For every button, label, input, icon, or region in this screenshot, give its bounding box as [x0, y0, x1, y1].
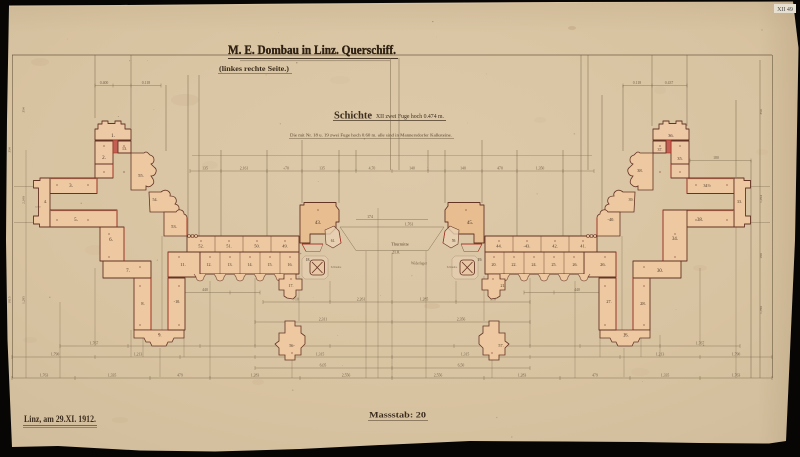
svg-text:-40.: -40.	[608, 217, 615, 222]
svg-text:13.: 13.	[228, 262, 233, 267]
svg-text:16.: 16.	[288, 262, 293, 267]
svg-text:25.: 25.	[552, 262, 557, 267]
svg-text:Linz, am 29.XI. 1912.: Linz, am 29.XI. 1912.	[24, 414, 96, 424]
svg-text:-10.: -10.	[174, 299, 181, 304]
svg-text:470: 470	[497, 167, 503, 171]
svg-text:180: 180	[759, 253, 763, 258]
svg-text:26.: 26.	[600, 262, 606, 267]
svg-text:50.: 50.	[254, 244, 260, 249]
svg-text:61.: 61.	[331, 239, 336, 243]
svg-text:0,160: 0,160	[35, 206, 41, 209]
svg-text:+70: +70	[283, 167, 289, 171]
svg-text:6.: 6.	[109, 238, 113, 243]
svg-text:15.: 15.	[268, 262, 273, 267]
svg-text:140: 140	[409, 167, 415, 171]
svg-text:38.: 38.	[697, 218, 703, 223]
svg-text:27.: 27.	[606, 299, 611, 304]
svg-text:21.: 21.	[501, 283, 506, 288]
svg-text:36.: 36.	[668, 133, 674, 138]
svg-text:59.: 59.	[452, 239, 457, 243]
svg-text:180: 180	[713, 156, 719, 160]
svg-text:56-: 56-	[289, 343, 295, 348]
svg-text:0.437: 0.437	[665, 81, 674, 85]
svg-text:30.: 30.	[657, 269, 663, 274]
svg-text:Schraube: Schraube	[331, 266, 342, 269]
svg-text:0.118: 0.118	[142, 81, 151, 85]
svg-text:49.: 49.	[282, 244, 288, 249]
svg-text:39.: 39.	[629, 197, 634, 202]
svg-text:37.: 37.	[658, 147, 663, 152]
svg-text:1.: 1.	[111, 134, 115, 139]
svg-text:34½: 34½	[703, 183, 710, 188]
svg-text:33.: 33.	[737, 199, 742, 204]
svg-text:140: 140	[460, 167, 466, 171]
svg-text:41.: 41.	[580, 244, 586, 249]
svg-text:354: 354	[8, 147, 12, 152]
svg-text:19.: 19.	[478, 258, 483, 262]
svg-text:55.: 55.	[138, 173, 144, 178]
svg-text:45.: 45.	[467, 221, 473, 226]
svg-text:28.: 28.	[640, 301, 646, 306]
svg-text:7.: 7.	[126, 269, 130, 274]
svg-text:354: 354	[759, 109, 763, 114]
svg-text:35.: 35.	[677, 156, 683, 161]
svg-text:3.: 3.	[69, 184, 73, 189]
svg-text:4.: 4.	[44, 199, 47, 204]
svg-text:38.: 38.	[637, 168, 643, 173]
svg-text:21.0.: 21.0.	[392, 250, 400, 255]
svg-text:14.: 14.	[248, 262, 253, 267]
svg-text:Thurmitte: Thurmitte	[391, 242, 409, 247]
svg-text:43.: 43.	[315, 221, 321, 226]
svg-text:17.: 17.	[289, 283, 294, 288]
svg-text:Schichte: Schichte	[334, 111, 373, 122]
svg-text:M. E. Dombau in Linz. Querschi: M. E. Dombau in Linz. Querschiff.	[228, 43, 396, 57]
svg-text:54.: 54.	[153, 197, 158, 202]
svg-text:135: 135	[202, 167, 208, 171]
svg-text:26.: 26.	[573, 262, 578, 267]
svg-text:0.118: 0.118	[633, 81, 642, 85]
svg-text:20.: 20.	[492, 262, 497, 267]
svg-text:42.: 42.	[552, 244, 558, 249]
svg-text:0.400: 0.400	[100, 81, 109, 85]
svg-text:440: 440	[202, 288, 208, 292]
svg-text:479: 479	[177, 374, 183, 378]
svg-text:XII 49: XII 49	[777, 7, 793, 13]
svg-text:Die mit Nr. 18 u. 19 zwei Fuge: Die mit Nr. 18 u. 19 zwei Fuge hoch 0.60…	[290, 133, 452, 138]
svg-text:354: 354	[22, 107, 26, 112]
svg-text:57.: 57.	[498, 343, 503, 348]
svg-text:11.: 11.	[180, 262, 186, 267]
svg-text:51.: 51.	[226, 244, 232, 249]
svg-text:(linkes rechte Seite.): (linkes rechte Seite.)	[219, 64, 290, 73]
svg-text:Schraube: Schraube	[447, 266, 458, 269]
svg-text:52.: 52.	[198, 244, 204, 249]
svg-text:53.: 53.	[171, 224, 177, 229]
svg-text:12.: 12.	[207, 262, 212, 267]
svg-text:135: 135	[319, 167, 325, 171]
svg-text:8.: 8.	[141, 301, 144, 306]
svg-text:34.: 34.	[672, 237, 678, 242]
svg-text:174: 174	[367, 215, 373, 219]
svg-text:22.: 22.	[512, 262, 517, 267]
svg-text:Widerlager: Widerlager	[411, 262, 428, 266]
svg-text:2.: 2.	[102, 156, 106, 161]
svg-text:1915: 1915	[8, 296, 12, 303]
svg-text:XII zwei Fuge hoch 0.474 m.: XII zwei Fuge hoch 0.474 m.	[376, 114, 444, 120]
svg-text:479: 479	[592, 374, 598, 378]
svg-text:Massstab: 20: Massstab: 20	[369, 410, 426, 420]
svg-text:440: 440	[574, 288, 580, 292]
svg-text:-43.: -43.	[524, 244, 531, 249]
svg-text:18.: 18.	[306, 258, 311, 262]
svg-text:5.: 5.	[74, 218, 78, 223]
svg-text:24.: 24.	[532, 262, 537, 267]
svg-text:44.: 44.	[496, 244, 502, 249]
